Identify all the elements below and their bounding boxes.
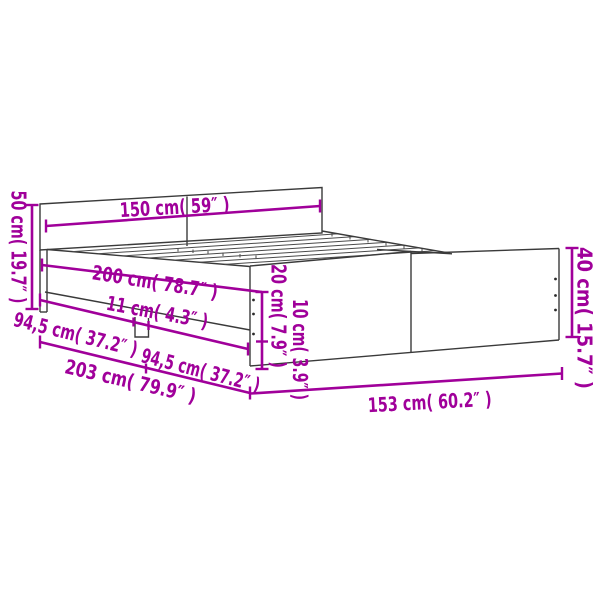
diagram-canvas: 150 cm( 59″ ) 200 cm( 78.7″ ) 11 cm( 4.3… [0,0,600,600]
dim-label-headboard-height: 50 cm( 19.7″ ) [7,191,31,304]
dim-label-footboard-height: 40 cm( 15.7″ ) [573,247,597,389]
dim-label-rail-lower-height: 10 cm( 3.9″ ) [288,299,312,400]
dim-label-rail-upper-height: 20 cm( 7.9″ ) [267,264,291,368]
far-side-rail [322,231,452,254]
bed-frame-dimension-diagram: 150 cm( 59″ ) 200 cm( 78.7″ ) 11 cm( 4.3… [0,0,600,600]
dim-label-headboard-width: 150 cm( 59″ ) [119,192,230,222]
dimension-labels: 150 cm( 59″ ) 200 cm( 78.7″ ) 11 cm( 4.3… [7,191,597,418]
dim-label-footboard-width: 153 cm( 60.2″ ) [367,387,492,417]
